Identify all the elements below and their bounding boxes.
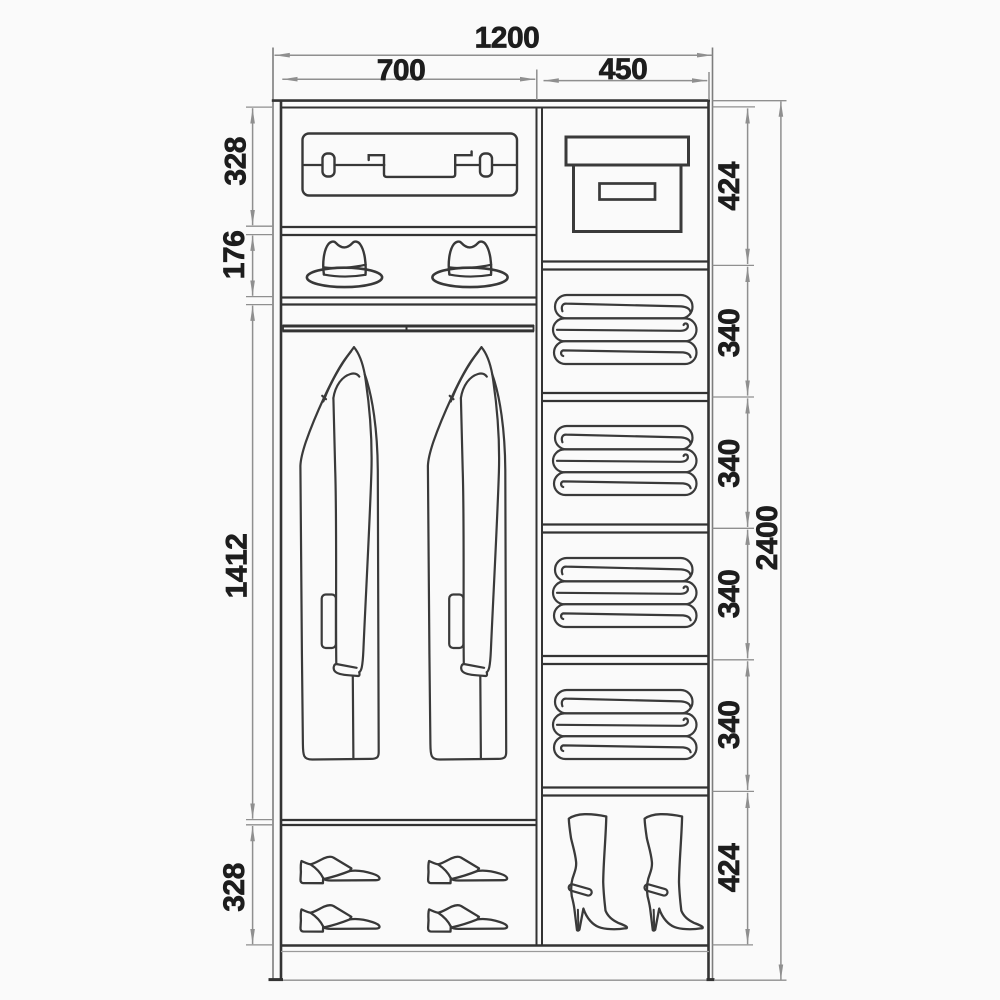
- svg-text:424: 424: [713, 161, 746, 210]
- svg-text:424: 424: [713, 843, 746, 892]
- svg-text:340: 340: [713, 439, 746, 488]
- svg-text:450: 450: [599, 53, 648, 86]
- svg-text:1412: 1412: [221, 534, 254, 599]
- svg-text:328: 328: [218, 863, 251, 912]
- svg-text:2400: 2400: [751, 506, 784, 571]
- svg-text:176: 176: [218, 231, 251, 280]
- svg-text:340: 340: [713, 309, 746, 358]
- svg-text:328: 328: [220, 137, 253, 186]
- svg-text:340: 340: [713, 701, 746, 750]
- svg-text:1200: 1200: [475, 22, 540, 55]
- svg-text:700: 700: [377, 54, 426, 87]
- svg-text:340: 340: [713, 570, 746, 619]
